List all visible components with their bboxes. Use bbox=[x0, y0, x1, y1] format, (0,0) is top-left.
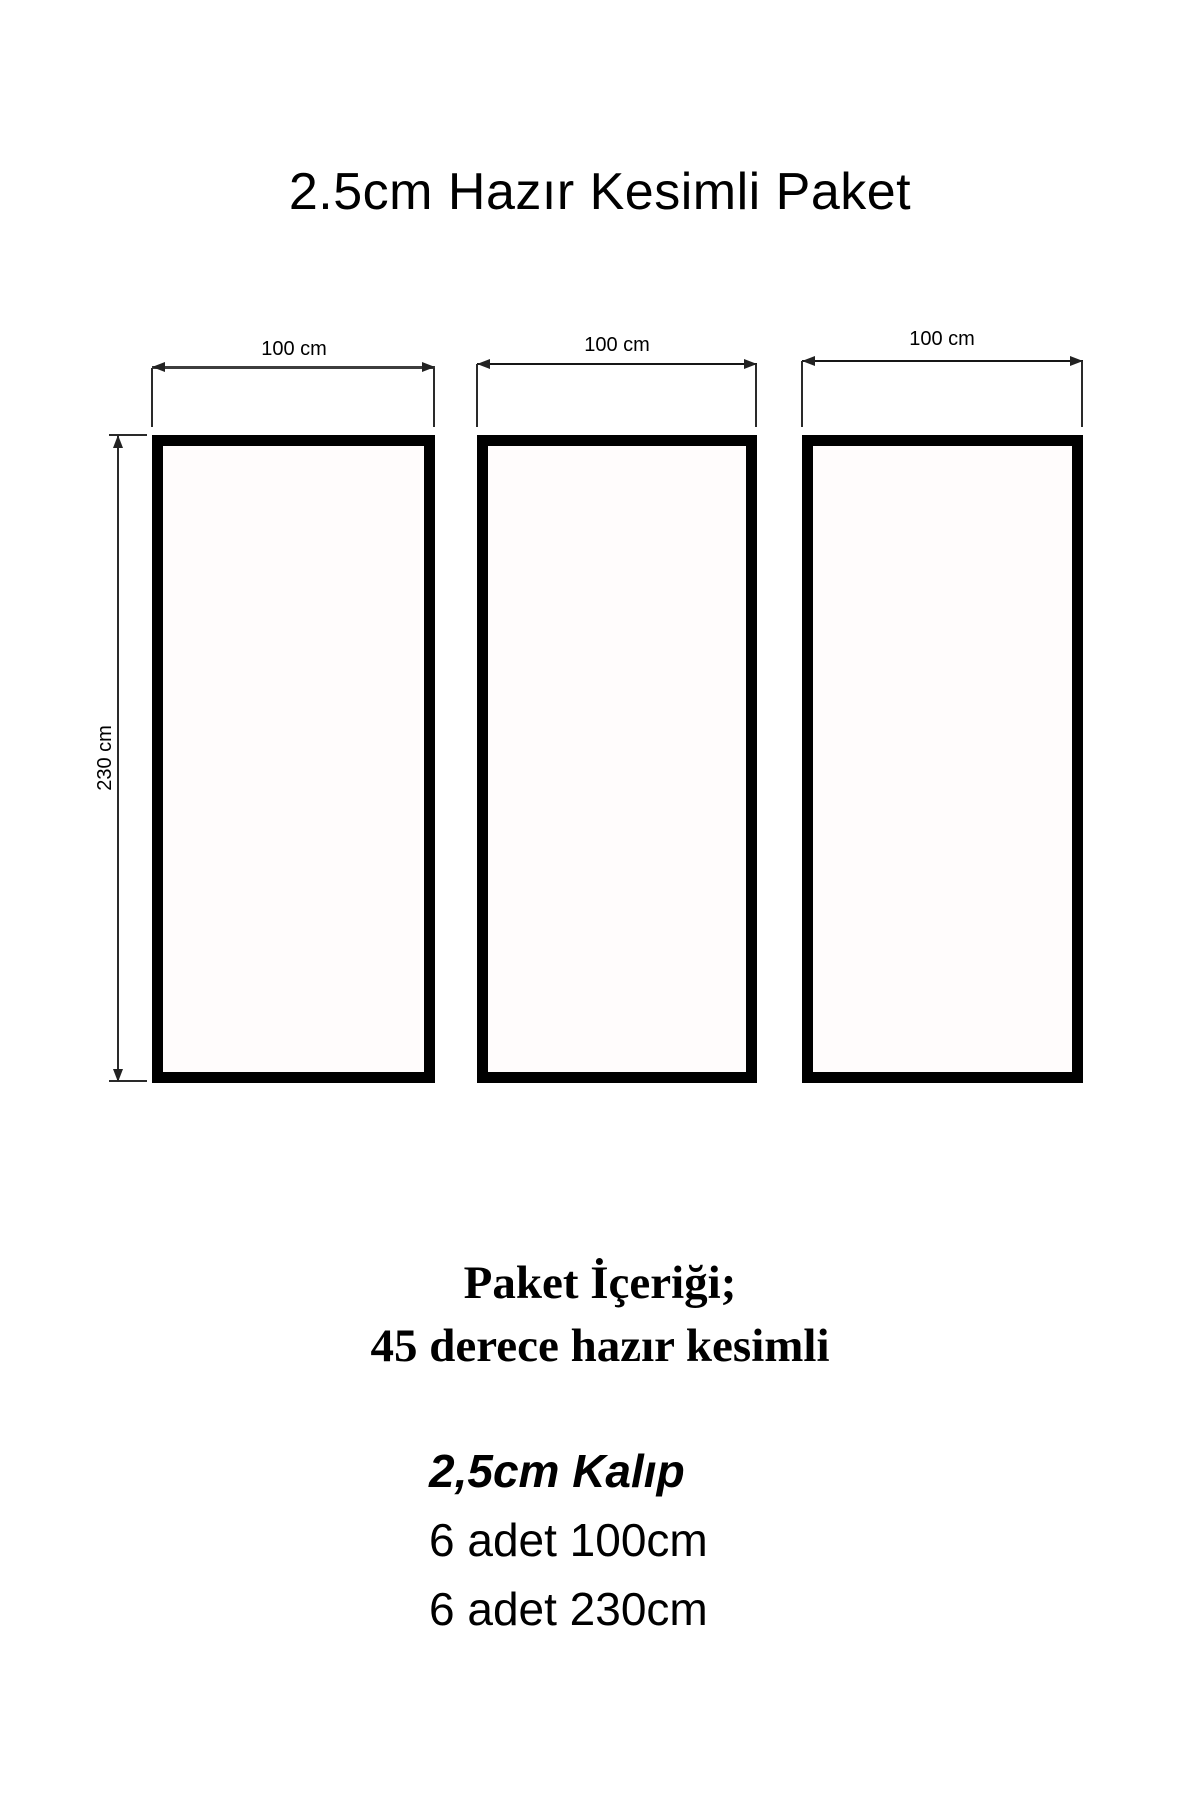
mold-size-label: 2,5cm Kalıp bbox=[429, 1437, 708, 1506]
arrowhead-down-icon bbox=[113, 1069, 123, 1082]
product-diagram-page: 2.5cm Hazır Kesimli Paket 100 cm 100 cm … bbox=[0, 0, 1200, 1800]
package-item-list: 2,5cm Kalıp 6 adet 100cm 6 adet 230cm bbox=[429, 1437, 708, 1644]
arrowhead-left-icon bbox=[802, 356, 815, 366]
extension-line bbox=[151, 368, 153, 427]
arrowhead-left-icon bbox=[477, 359, 490, 369]
dimension-line bbox=[117, 435, 119, 1082]
arrowhead-left-icon bbox=[152, 362, 165, 372]
panel-frame-1 bbox=[152, 435, 435, 1083]
extension-line bbox=[433, 368, 435, 427]
arrowhead-right-icon bbox=[422, 362, 435, 372]
extension-line bbox=[801, 361, 803, 427]
arrowhead-up-icon bbox=[113, 435, 123, 448]
extension-line bbox=[755, 364, 757, 427]
panel-frame-2 bbox=[477, 435, 757, 1083]
extension-line bbox=[476, 364, 478, 427]
dimension-line bbox=[477, 363, 757, 365]
list-item: 6 adet 100cm bbox=[429, 1506, 708, 1575]
dimension-line bbox=[152, 366, 435, 369]
package-contents-heading: Paket İçeriği; bbox=[0, 1252, 1200, 1315]
width-dimension-label-3: 100 cm bbox=[872, 328, 1012, 350]
page-title: 2.5cm Hazır Kesimli Paket bbox=[0, 165, 1200, 220]
width-dimension-label-1: 100 cm bbox=[224, 338, 364, 360]
height-dimension-label: 230 cm bbox=[95, 708, 115, 808]
arrowhead-right-icon bbox=[744, 359, 757, 369]
package-contents-subheading: 45 derece hazır kesimli bbox=[0, 1315, 1200, 1378]
width-dimension-label-2: 100 cm bbox=[547, 334, 687, 356]
extension-line bbox=[1081, 361, 1083, 427]
dimension-line bbox=[802, 360, 1083, 362]
panel-frame-3 bbox=[802, 435, 1083, 1083]
arrowhead-right-icon bbox=[1070, 356, 1083, 366]
package-contents-block: Paket İçeriği; 45 derece hazır kesimli bbox=[0, 1252, 1200, 1378]
list-item: 6 adet 230cm bbox=[429, 1575, 708, 1644]
